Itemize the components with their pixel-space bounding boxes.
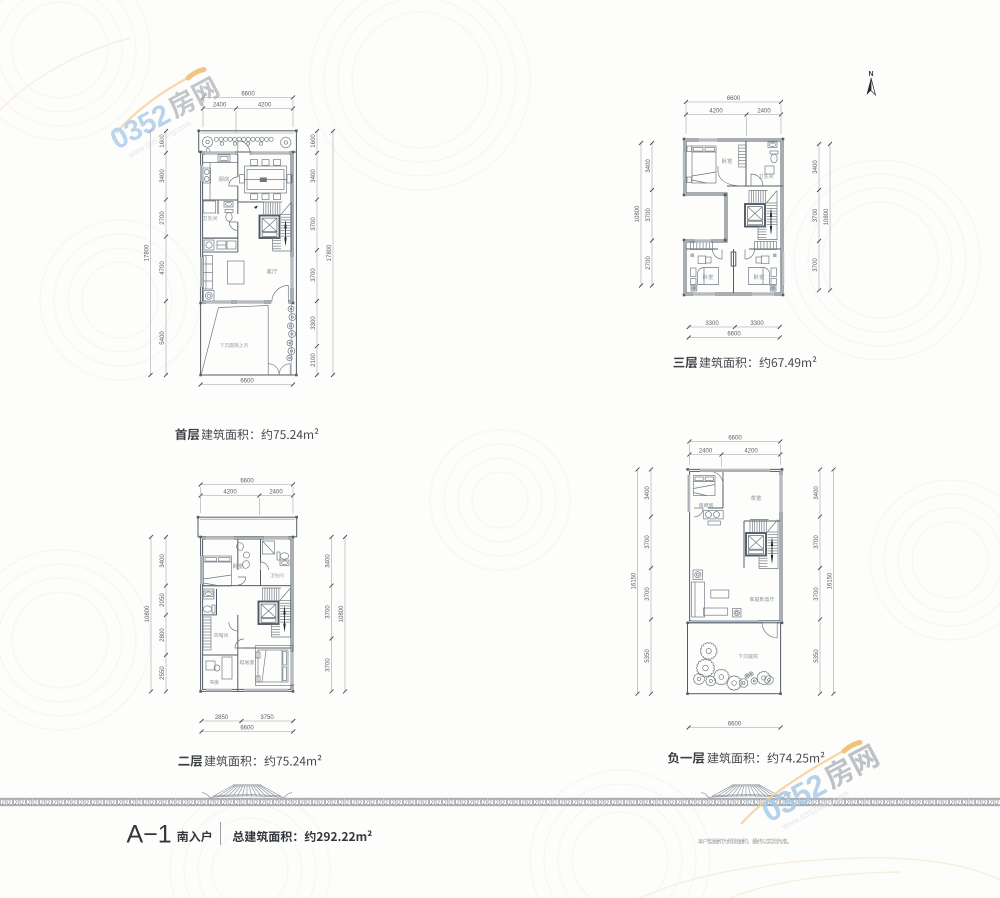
svg-text:3300: 3300 (750, 321, 764, 327)
svg-text:3700: 3700 (645, 535, 651, 549)
svg-text:4200: 4200 (744, 448, 758, 454)
svg-text:6600: 6600 (727, 96, 741, 102)
svg-text:1600: 1600 (311, 134, 317, 148)
svg-text:3300: 3300 (705, 321, 719, 327)
svg-text:2800: 2800 (160, 628, 166, 642)
svg-text:3300: 3300 (311, 316, 317, 330)
svg-text:5350: 5350 (645, 649, 651, 663)
svg-text:10800: 10800 (339, 605, 345, 622)
svg-text:2850: 2850 (215, 715, 229, 721)
svg-text:10800: 10800 (635, 205, 641, 222)
svg-text:A−1: A−1 (127, 821, 172, 849)
svg-text:3400: 3400 (813, 160, 819, 174)
svg-text:3700: 3700 (326, 605, 332, 619)
svg-text:3400: 3400 (814, 486, 820, 500)
svg-text:2050: 2050 (160, 593, 166, 607)
svg-text:17800: 17800 (145, 244, 151, 261)
svg-text:10800: 10800 (824, 208, 830, 225)
svg-text:3400: 3400 (645, 486, 651, 500)
svg-text:2400: 2400 (213, 102, 227, 108)
svg-text:16150: 16150 (828, 572, 834, 589)
svg-text:2400: 2400 (757, 108, 771, 114)
svg-text:2700: 2700 (160, 211, 166, 225)
svg-text:3700: 3700 (311, 217, 317, 231)
svg-text:3400: 3400 (646, 159, 652, 173)
svg-text:3700: 3700 (813, 258, 819, 272)
svg-text:2400: 2400 (699, 448, 713, 454)
svg-text:10800: 10800 (145, 605, 151, 622)
svg-text:3400: 3400 (160, 169, 166, 183)
svg-text:3400: 3400 (160, 554, 166, 568)
svg-text:2400: 2400 (269, 489, 283, 495)
svg-text:4200: 4200 (223, 489, 237, 495)
svg-text:6600: 6600 (727, 331, 741, 337)
svg-text:4200: 4200 (258, 102, 272, 108)
svg-text:4200: 4200 (709, 108, 723, 114)
svg-text:17800: 17800 (327, 244, 333, 261)
svg-text:3700: 3700 (814, 535, 820, 549)
svg-text:3700: 3700 (326, 658, 332, 672)
svg-text:6600: 6600 (240, 378, 254, 384)
svg-text:6600: 6600 (240, 725, 254, 731)
svg-text:6600: 6600 (241, 91, 255, 97)
svg-text:3400: 3400 (311, 169, 317, 183)
svg-text:N: N (868, 71, 873, 78)
svg-text:3400: 3400 (326, 554, 332, 568)
svg-text:2700: 2700 (646, 256, 652, 270)
svg-text:6600: 6600 (728, 435, 742, 441)
svg-text:3700: 3700 (645, 587, 651, 601)
svg-text:16150: 16150 (632, 572, 638, 589)
svg-text:2100: 2100 (311, 353, 317, 367)
svg-text:3700: 3700 (646, 208, 652, 222)
svg-text:3750: 3750 (260, 715, 274, 721)
svg-text:6600: 6600 (240, 478, 254, 484)
svg-text:6600: 6600 (728, 721, 742, 727)
svg-text:3700: 3700 (814, 587, 820, 601)
svg-text:5350: 5350 (814, 649, 820, 663)
svg-text:3700: 3700 (311, 268, 317, 282)
svg-text:2550: 2550 (160, 666, 166, 680)
svg-text:5400: 5400 (160, 331, 166, 345)
svg-text:4700: 4700 (160, 261, 166, 275)
svg-text:3700: 3700 (813, 208, 819, 222)
